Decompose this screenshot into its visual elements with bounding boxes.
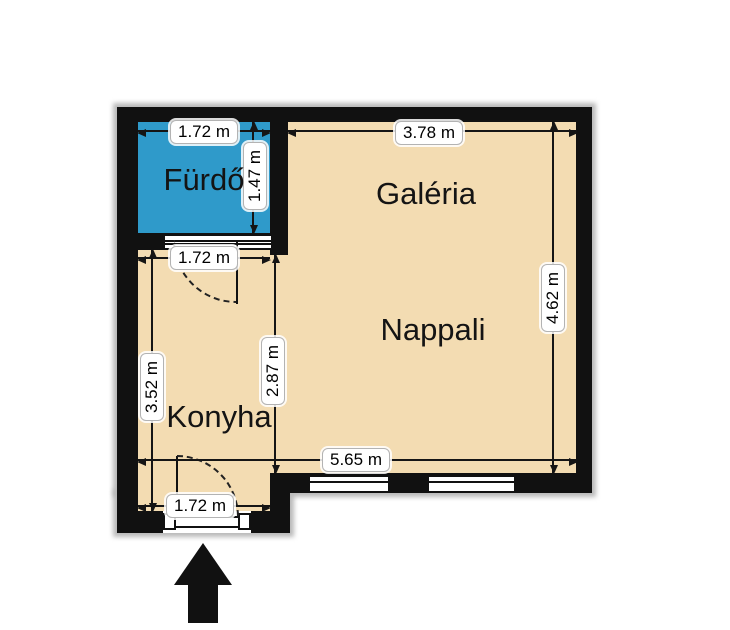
living-window-right-icon xyxy=(427,475,516,493)
dimension-label-kitchen-height: 3.52 m xyxy=(140,353,164,421)
living-room-floor xyxy=(288,122,576,473)
dimension-label-living-width: 5.65 m xyxy=(322,448,390,472)
entrance-arrow-stem xyxy=(188,584,218,623)
living-window-left-icon xyxy=(308,475,390,493)
entrance-jamb-right xyxy=(238,513,251,530)
dimension-label-kitchen-width: 1.72 m xyxy=(170,246,238,270)
dimension-label-entrance-width: 1.72 m xyxy=(166,494,234,518)
dimension-label-gallery-width: 3.78 m xyxy=(395,121,463,145)
dimension-label-bathroom-width: 1.72 m xyxy=(170,120,238,144)
dimension-label-bathroom-height: 1.47 m xyxy=(243,142,267,210)
dimension-label-living-height: 4.62 m xyxy=(541,264,565,332)
wall-left xyxy=(117,107,138,533)
window-pane-line xyxy=(309,481,389,483)
room-label-bathroom: Fürdő xyxy=(164,162,245,198)
room-label-living-room: Nappali xyxy=(380,312,485,348)
wall-right xyxy=(576,107,592,493)
room-label-gallery: Galéria xyxy=(376,176,476,212)
room-label-kitchen: Konyha xyxy=(166,399,271,435)
floor-plan: 1.72 m 1.47 m 3.78 m 4.62 m 1.72 m 3.52 … xyxy=(0,0,730,630)
window-pane-line xyxy=(428,481,515,483)
dimension-label-kitchen-living-depth: 2.87 m xyxy=(261,337,285,405)
entrance-arrow-head xyxy=(174,543,232,585)
